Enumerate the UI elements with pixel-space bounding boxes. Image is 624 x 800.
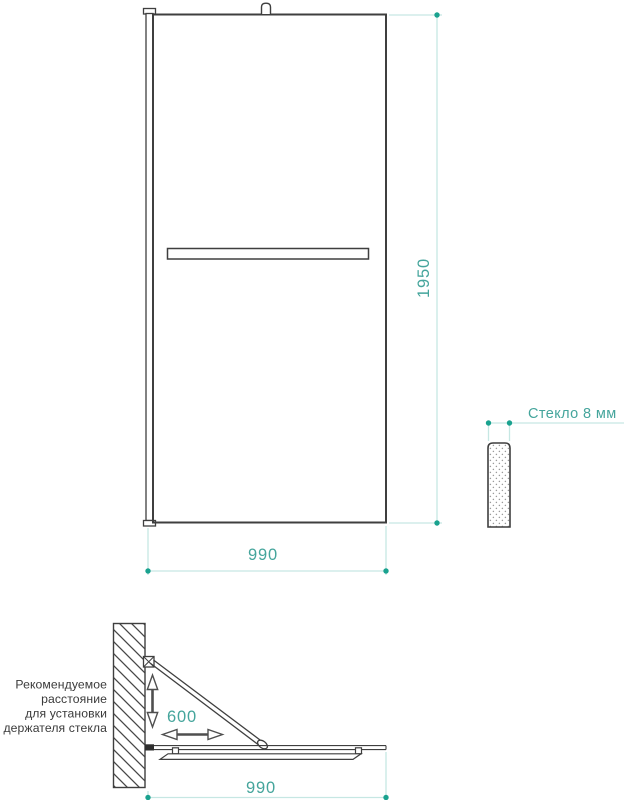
front-width-dimension-label: 990 — [248, 546, 278, 564]
top-glass-holder — [262, 3, 271, 14]
dim-dot — [486, 420, 491, 425]
arrow-down-head — [147, 713, 157, 728]
note-line-1: Рекомендуемое — [15, 678, 107, 692]
holder-note: Рекомендуемое расстояние для установки д… — [3, 678, 107, 736]
dim-dot — [434, 520, 439, 525]
front-width-dimension: 990 — [145, 526, 388, 575]
height-dimension: 1950 — [389, 12, 442, 525]
rail-bracket — [356, 748, 362, 754]
thickness-view: Стекло 8 мм — [486, 406, 624, 527]
drawing-canvas: 1950 990 Стекло 8 мм — [0, 0, 624, 800]
dim-dot — [145, 795, 150, 800]
dim-dot — [434, 12, 439, 17]
arrow-right-head — [208, 730, 223, 740]
note-line-4: держателя стекла — [3, 721, 107, 735]
note-line-2: расстояние — [41, 692, 107, 706]
dim-dot — [383, 568, 388, 573]
glass-thickness-label: Стекло 8 мм — [528, 406, 617, 422]
support-bar-glass-clamp — [256, 738, 269, 750]
towel-rail-front — [168, 249, 369, 260]
glass-panel-front — [153, 15, 386, 523]
wall-profile-plan — [145, 744, 154, 750]
dim-dot — [507, 420, 512, 425]
arrow-up-head — [147, 675, 157, 690]
height-dimension-label: 1950 — [415, 258, 433, 298]
glass-section — [488, 443, 510, 527]
dim-dot — [145, 568, 150, 573]
plan-view: 600 990 Рекомендуемое расстояние для уст… — [3, 624, 388, 800]
wall-section — [114, 624, 146, 788]
front-view: 1950 990 — [144, 3, 443, 575]
shower-panel-drawing: 1950 990 Стекло 8 мм — [0, 0, 624, 800]
holder-distance-label: 600 — [167, 708, 197, 726]
arrow-left-head — [163, 730, 178, 740]
rail-bracket — [173, 748, 179, 754]
note-line-3: для установки — [25, 707, 107, 721]
dim-dot — [383, 795, 388, 800]
plan-width-dimension-label: 990 — [246, 779, 276, 797]
